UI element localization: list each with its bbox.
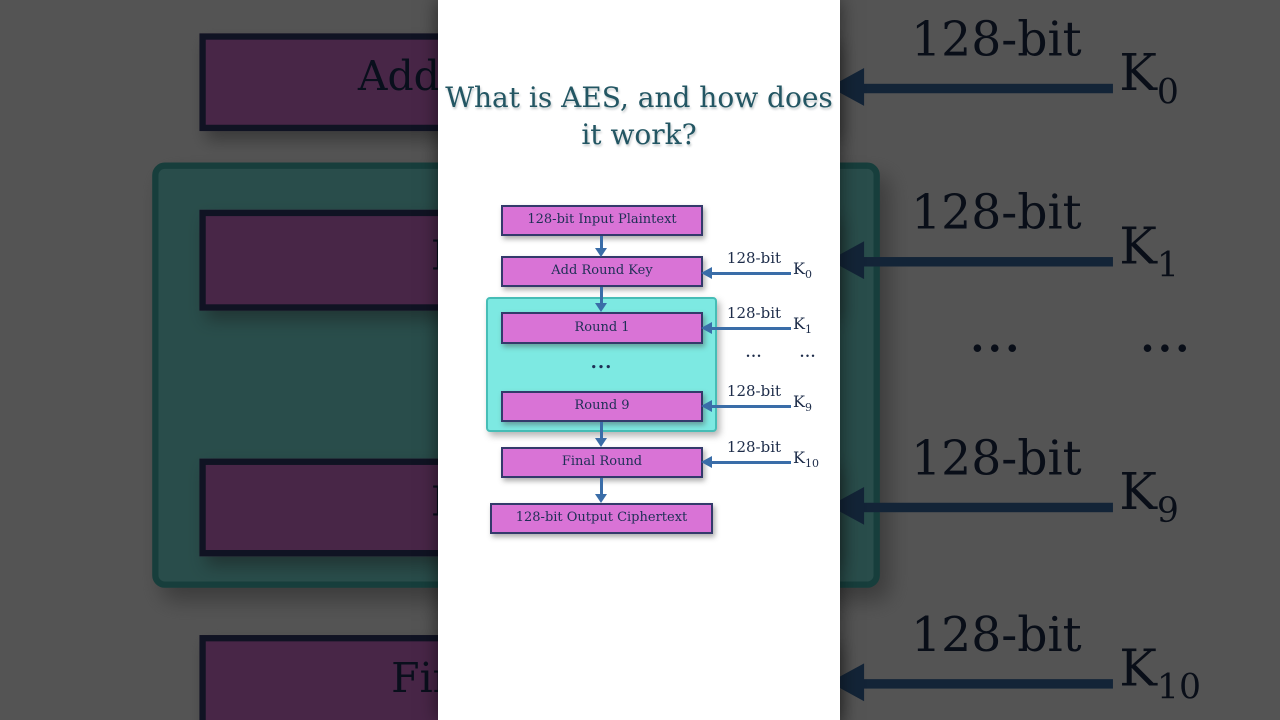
key-label-k0-base: K <box>793 259 805 278</box>
down-arrow-3-line <box>600 422 603 439</box>
key-label-k9-base: K <box>793 392 805 411</box>
down-arrow-2-head-icon <box>595 303 607 312</box>
flow-box-add-round-key: Add Round Key <box>501 256 703 287</box>
key-label-k10-sub: 10 <box>805 457 819 470</box>
key-label-k0-sub: 0 <box>805 268 812 281</box>
down-arrow-4-head-icon <box>595 494 607 503</box>
down-arrow-1-head-icon <box>595 248 607 257</box>
content-strip: What is AES, and how does it work? 128-b… <box>438 0 840 720</box>
key-label-k9-sub: 9 <box>805 401 812 414</box>
key-arrow-k1-line <box>711 327 791 330</box>
bits-label-k9: 128-bit <box>719 382 789 400</box>
key-arrow-k10-head-icon <box>701 456 712 468</box>
key-label-k1-sub: 1 <box>805 323 812 336</box>
video-title-line1: What is AES, and how does <box>438 79 840 116</box>
key-arrow-k0-head-icon <box>701 267 712 279</box>
key-label-k10: K10 <box>793 448 819 470</box>
key-arrow-k10-line <box>711 461 791 464</box>
bits-label-k0: 128-bit <box>719 249 789 267</box>
bits-label-k10: 128-bit <box>719 438 789 456</box>
video-title-line2: it work? <box>438 116 840 153</box>
key-label-k0: K0 <box>793 259 812 281</box>
rounds-ellipsis: ... <box>581 354 622 372</box>
keys-ellipsis: ... <box>788 347 828 360</box>
key-arrow-k0-line <box>711 272 791 275</box>
down-arrow-3-head-icon <box>595 438 607 447</box>
key-label-k1: K1 <box>793 314 812 336</box>
key-arrow-k9-head-icon <box>701 400 712 412</box>
key-label-k10-base: K <box>793 448 805 467</box>
flow-box-round-9: Round 9 <box>501 391 703 422</box>
bits-label-k1: 128-bit <box>719 304 789 322</box>
down-arrow-4-line <box>600 478 603 495</box>
video-frame: What is AES, and how does it work? 128-b… <box>0 0 1280 720</box>
flow-box-output-ciphertext: 128-bit Output Ciphertext <box>490 503 713 534</box>
key-label-k1-base: K <box>793 314 805 333</box>
video-title: What is AES, and how does it work? <box>438 79 840 153</box>
down-arrow-2-line <box>600 287 603 304</box>
bits-ellipsis: ... <box>726 347 782 360</box>
flow-box-final-round: Final Round <box>501 447 703 478</box>
aes-flow-diagram: What is AES, and how does it work? 128-b… <box>438 0 840 720</box>
flow-box-round-1: Round 1 <box>501 312 703 344</box>
flow-box-input-plaintext: 128-bit Input Plaintext <box>501 205 703 236</box>
key-label-k9: K9 <box>793 392 812 414</box>
key-arrow-k9-line <box>711 405 791 408</box>
key-arrow-k1-head-icon <box>701 322 712 334</box>
